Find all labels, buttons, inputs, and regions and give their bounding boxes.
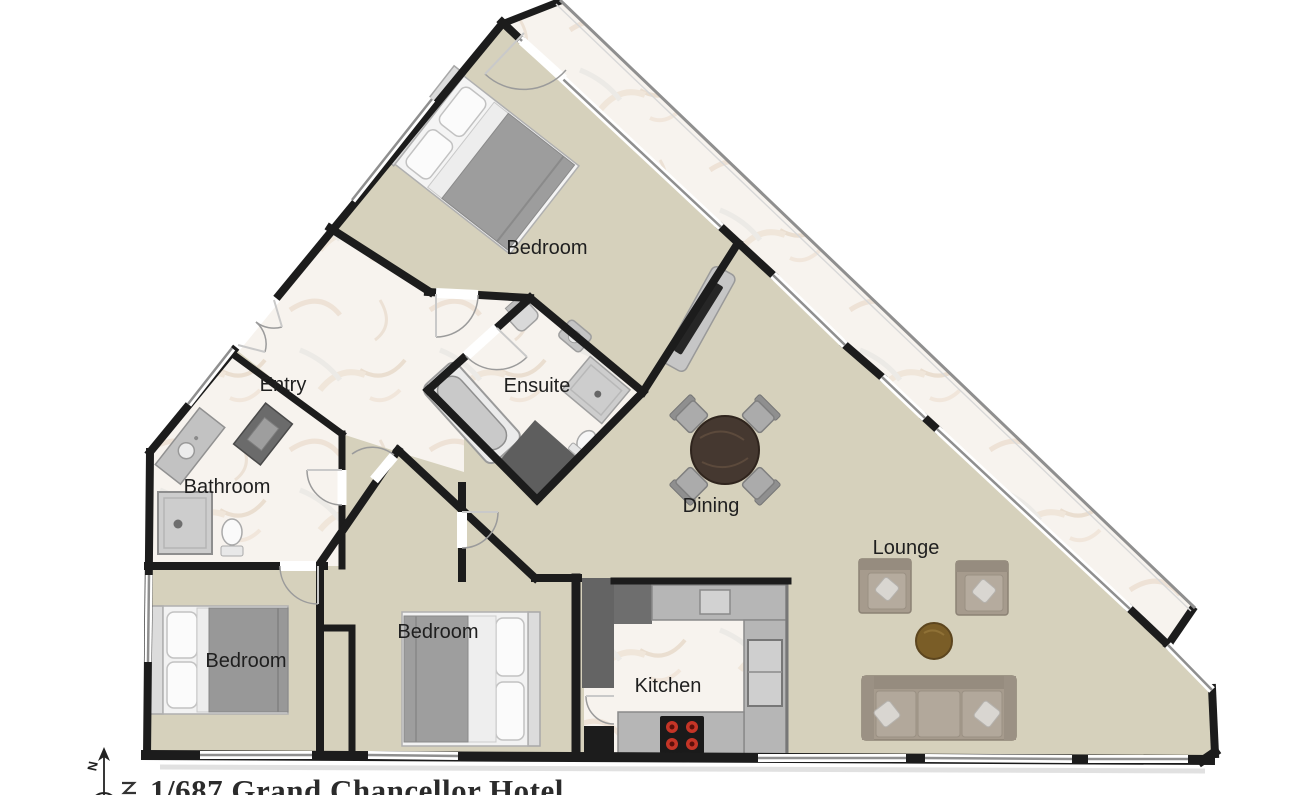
room-label-entry: Entry <box>260 374 307 396</box>
coffee-table-icon <box>916 623 952 659</box>
stove-icon <box>660 716 704 754</box>
room-label-ensuite: Ensuite <box>504 375 571 397</box>
floor-plan-page: Bedroom Ensuite Entry Bathroom Bedroom B… <box>0 0 1300 795</box>
dining-table-icon <box>691 416 759 484</box>
compass-north-label: N <box>84 760 101 772</box>
toilet-icon <box>221 519 243 556</box>
armchair-icon <box>956 561 1008 615</box>
room-label-bedroom-top: Bedroom <box>506 237 587 259</box>
sink-icon <box>700 590 730 614</box>
room-label-dining: Dining <box>683 495 740 517</box>
room-label-bathroom: Bathroom <box>184 476 271 498</box>
service-duct <box>614 583 652 624</box>
floor-plan-canvas: Bedroom Ensuite Entry Bathroom Bedroom B… <box>0 0 1300 795</box>
room-label-lounge: Lounge <box>873 537 940 559</box>
service-duct <box>582 578 614 688</box>
room-label-kitchen: Kitchen <box>635 675 702 697</box>
plan-title: 1/687 Grand Chancellor Hotel <box>150 773 564 795</box>
sofa-icon <box>862 676 1016 740</box>
compass-icon: N <box>84 747 136 795</box>
cutoff-glyph <box>122 783 136 793</box>
armchair-icon <box>859 559 911 613</box>
shower-icon <box>158 492 212 554</box>
fridge-icon <box>748 640 782 706</box>
wall-shadow <box>160 767 1205 771</box>
room-label-bedroom-left: Bedroom <box>205 650 286 672</box>
room-label-bedroom-middle: Bedroom <box>397 621 478 643</box>
